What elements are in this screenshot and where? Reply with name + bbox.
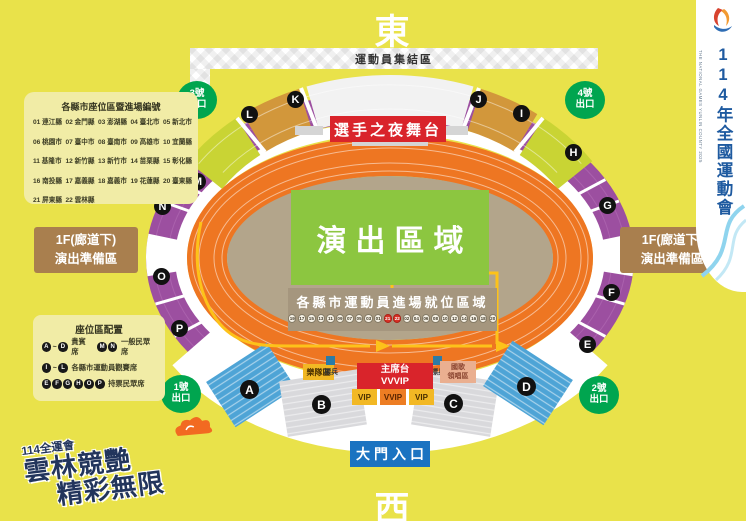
side-banner-subtitle: THE NATIONAL GAMES YUNLIN COUNTY 2025 <box>698 50 703 163</box>
section-badge-P: P <box>171 320 188 337</box>
lineup-number: 10 <box>441 314 449 323</box>
legend-label: 貴賓席 <box>71 337 93 357</box>
exit-4: 4號 出口 <box>565 81 605 119</box>
vvip-box: VVIP <box>380 389 406 405</box>
lineup-number: 12 <box>450 314 458 323</box>
county-item: 18 嘉義市 <box>98 175 130 185</box>
lineup-number: 17 <box>298 314 306 323</box>
lineup-number-row: 1917151311090705030121220204060810121416… <box>288 314 497 323</box>
lineup-number: 14 <box>460 314 468 323</box>
county-item: 15 彰化縣 <box>163 155 195 165</box>
county-item: 07 臺中市 <box>66 136 98 146</box>
lineup-number: 20 <box>489 314 497 323</box>
legend-label: 一般民眾席 <box>121 337 157 357</box>
county-item: 03 澎湖縣 <box>98 116 130 126</box>
legend-seat-badge: I <box>42 363 52 373</box>
lineup-number: 05 <box>355 314 363 323</box>
anthem-area-box: 國歌 領唱區 <box>440 361 476 383</box>
legend-entry: I~L各縣市運動員觀賽席 <box>41 363 137 373</box>
lineup-number: 11 <box>326 314 334 323</box>
stand-badge-A: A <box>240 380 259 399</box>
section-badge-K: K <box>287 91 304 108</box>
county-item: 02 金門縣 <box>66 116 98 126</box>
exit-2: 2號 出口 <box>579 376 619 414</box>
county-item: 19 花蓮縣 <box>131 175 163 185</box>
performance-area: 演出區域 <box>291 190 489 285</box>
legend-entry: EFGHOP持票民眾席 <box>41 379 145 389</box>
compass-west: 西 <box>370 481 414 521</box>
county-list-title: 各縣市座位區暨進場編號 <box>24 100 198 113</box>
side-banner-title: 114年全國運動會 <box>711 46 735 217</box>
county-item: 22 雲林縣 <box>66 194 98 204</box>
seat-legend-rows: A~D貴賓席MN一般民眾席I~L各縣市運動員觀賽席EFGHOP持票民眾席 <box>41 337 161 395</box>
county-item: 12 新竹縣 <box>66 155 98 165</box>
legend-label: 持票民眾席 <box>108 379 144 389</box>
county-item: 21 屏東縣 <box>33 194 65 204</box>
section-badge-L: L <box>241 106 258 123</box>
exit-1: 1號 出口 <box>161 375 201 413</box>
lineup-area-title: 各縣市運動員進場就位區域 <box>288 292 497 311</box>
games-flame-icon <box>704 6 738 38</box>
section-badge-F: F <box>603 284 620 301</box>
lineup-number: 13 <box>317 314 325 323</box>
stadium-map-page: 東 西 運動員集結區 選手之夜舞台 演出區域 各縣市運動員進場就位區域 1917… <box>0 0 746 521</box>
county-item: 04 臺北市 <box>131 116 163 126</box>
legend-seat-badge: D <box>58 342 67 352</box>
legend-row: A~D貴賓席MN一般民眾席 <box>41 337 161 357</box>
lineup-number: 07 <box>345 314 353 323</box>
legend-seat-badge: O <box>84 379 94 389</box>
county-list: 01 連江縣02 金門縣03 澎湖縣04 臺北市05 新北市06 桃園市07 臺… <box>33 116 193 204</box>
section-badge-E: E <box>579 336 596 353</box>
legend-seat-badge: A <box>42 342 51 352</box>
county-item: 16 南投縣 <box>33 175 65 185</box>
legend-row: I~L各縣市運動員觀賽席 <box>41 363 161 373</box>
lineup-number: 01 <box>374 314 382 323</box>
section-badge-G: G <box>599 197 616 214</box>
chairman-stand-box: 主席台 VVVIP <box>357 363 433 389</box>
legend-seat-badge: P <box>95 379 105 389</box>
legend-seat-badge: M <box>97 342 106 352</box>
legend-seat-badge: H <box>74 379 84 389</box>
legend-entry: MN一般民眾席 <box>97 337 157 357</box>
marker-guard-square-left <box>326 356 335 365</box>
marker-guard-label-left: 標兵 <box>321 367 341 377</box>
vip-box-right: VIP <box>409 389 434 405</box>
county-item: 08 臺南市 <box>98 136 130 146</box>
county-item: 10 宜蘭縣 <box>163 136 195 146</box>
lineup-number: 22 <box>393 314 401 323</box>
legend-seat-badge: N <box>108 342 117 352</box>
legend-seat-badge: G <box>63 379 73 389</box>
lineup-number: 18 <box>479 314 487 323</box>
stand-badge-D: D <box>517 377 536 396</box>
county-item: 13 新竹市 <box>98 155 130 165</box>
county-item: 05 新北市 <box>163 116 195 126</box>
legend-label: 各縣市運動員觀賽席 <box>71 363 137 373</box>
legend-row: EFGHOP持票民眾席 <box>41 379 161 389</box>
lineup-number: 03 <box>364 314 372 323</box>
legend-seat-badge: L <box>58 363 68 373</box>
banner-waves <box>696 200 746 292</box>
stage-banner: 選手之夜舞台 <box>330 116 446 142</box>
county-item: 17 嘉義縣 <box>66 175 98 185</box>
legend-tilde: ~ <box>53 344 57 351</box>
lineup-number: 08 <box>431 314 439 323</box>
stand-badge-B: B <box>312 395 331 414</box>
legend-tilde: ~ <box>53 365 57 372</box>
section-badge-O: O <box>153 268 170 285</box>
lineup-area: 各縣市運動員進場就位區域 191715131109070503012122020… <box>288 288 497 331</box>
county-item: 01 連江縣 <box>33 116 65 126</box>
county-item: 06 桃園市 <box>33 136 65 146</box>
county-item: 20 臺東縣 <box>163 175 195 185</box>
lineup-number: 15 <box>307 314 315 323</box>
county-item: 14 苗栗縣 <box>131 155 163 165</box>
legend-entry: A~D貴賓席 <box>41 337 93 357</box>
county-item: 11 基隆市 <box>33 155 65 165</box>
assembly-area-banner: 運動員集結區 <box>190 48 598 69</box>
lineup-number: 06 <box>422 314 430 323</box>
lineup-number: 21 <box>384 314 392 323</box>
lineup-number: 02 <box>403 314 411 323</box>
main-gate-box: 大門入口 <box>350 441 430 467</box>
lineup-number: 16 <box>469 314 477 323</box>
lineup-number: 09 <box>336 314 344 323</box>
stand-badge-C: C <box>444 394 463 413</box>
prep-area-left: 1F(廊道下) 演出準備區 <box>34 227 138 273</box>
assembly-area-label: 運動員集結區 <box>355 51 433 67</box>
vip-box-left: VIP <box>352 389 377 405</box>
section-badge-I: I <box>513 105 530 122</box>
section-badge-J: J <box>470 91 487 108</box>
lineup-number: 19 <box>288 314 296 323</box>
seat-legend-title: 座位區配置 <box>33 322 165 336</box>
legend-seat-badge: E <box>42 379 52 389</box>
lineup-number: 04 <box>412 314 420 323</box>
county-item: 09 高雄市 <box>131 136 163 146</box>
section-badge-H: H <box>565 144 582 161</box>
legend-seat-badge: F <box>52 379 62 389</box>
side-banner: 114年全國運動會 THE NATIONAL GAMES YUNLIN COUN… <box>696 0 746 292</box>
